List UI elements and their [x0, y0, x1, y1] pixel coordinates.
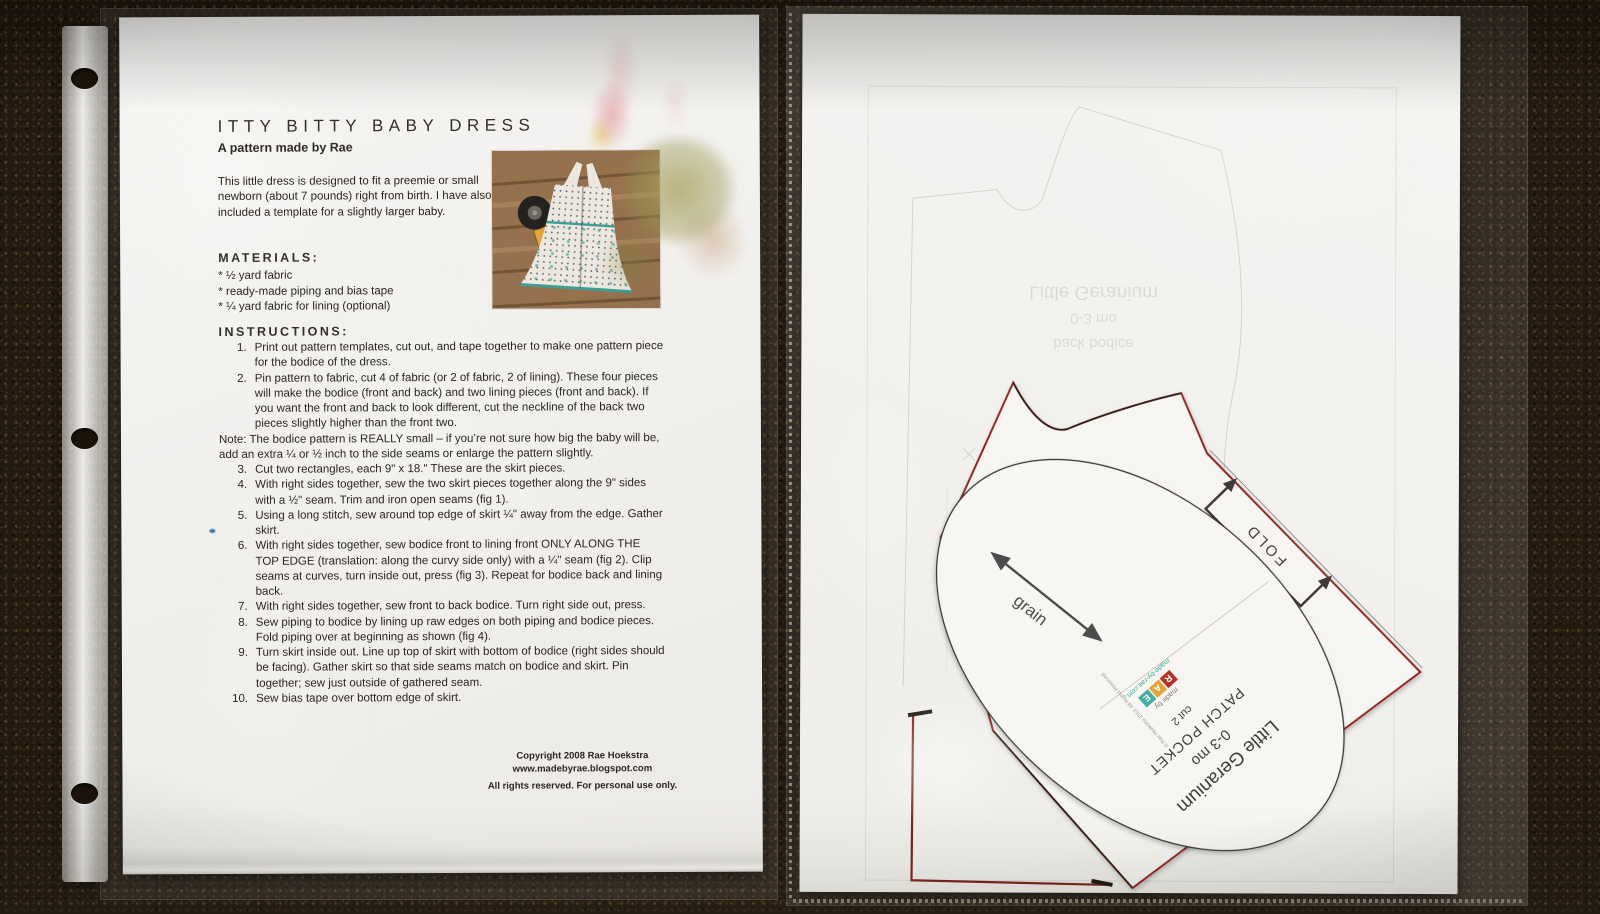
instruction-step: 9.Turn skirt inside out. Line up top of … — [220, 644, 666, 692]
pink-stain — [537, 35, 673, 164]
materials-item: * ready-made piping and bias tape — [218, 284, 393, 300]
step-number: 6. — [219, 539, 247, 600]
step-number: 1. — [219, 341, 247, 372]
step-text: Sew bias tape over bottom edge of skirt. — [256, 690, 666, 707]
step-text: Pin pattern to fabric, cut 4 of fabric (… — [255, 370, 665, 433]
right-sheet-protector: Little Geranium 0-3 mo back bodice — [786, 6, 1528, 906]
step-text: With right sides together, sew front to … — [256, 598, 666, 615]
copyright-block: Copyright 2008 Rae Hoekstra www.madebyra… — [474, 750, 690, 793]
show-through-labels: Little Geranium 0-3 mo back bodice — [1029, 282, 1158, 352]
dress-photo-graphic — [492, 150, 661, 309]
binder-hole — [71, 428, 98, 449]
step-number: 4. — [219, 478, 247, 509]
step-text: Print out pattern templates, cut out, an… — [255, 339, 665, 371]
copyright-url: www.madebyrae.blogspot.com — [474, 762, 690, 775]
instruction-step: 1.Print out pattern templates, cut out, … — [219, 339, 665, 371]
step-number: 10. — [220, 692, 248, 707]
step-text: With right sides together, sew the two s… — [255, 476, 665, 508]
step-text: Turn skirt inside out. Line up top of sk… — [256, 644, 666, 692]
instructions-heading: INSTRUCTIONS: — [218, 324, 348, 339]
step-number: 3. — [219, 463, 247, 478]
pattern-page: Little Geranium 0-3 mo back bodice — [799, 14, 1460, 894]
step-number: 2. — [219, 371, 247, 432]
pink-stain-small — [651, 63, 699, 143]
step-number: 9. — [220, 646, 248, 692]
materials-heading: MATERIALS: — [218, 251, 319, 265]
instruction-step: 8.Sew piping to bodice by lining up raw … — [220, 614, 666, 646]
step-number: 7. — [220, 600, 248, 615]
binder-hole — [71, 783, 98, 804]
intro-paragraph: This little dress is designed to fit a p… — [218, 174, 500, 221]
binder-strip — [62, 26, 108, 882]
instruction-step: 2.Pin pattern to fabric, cut 4 of fabric… — [219, 370, 665, 433]
step-text: With right sides together, sew bodice fr… — [255, 537, 665, 600]
step-text: Using a long stitch, sew around top edge… — [255, 507, 665, 539]
materials-item: * ½ yard fabric — [218, 268, 393, 284]
binder-hole — [71, 68, 98, 89]
instruction-step: 6.With right sides together, sew bodice … — [219, 537, 665, 600]
step-text: Cut two rectangles, each 9" x 18." These… — [255, 461, 665, 478]
note-paragraph: Note: The bodice pattern is REALLY small… — [219, 431, 665, 463]
left-sheet-protector: ITTY BITTY BABY DRESS A pattern made by … — [100, 8, 778, 900]
instruction-step: 5.Using a long stitch, sew around top ed… — [219, 507, 665, 539]
materials-item: * ¼ yard fabric for lining (optional) — [218, 299, 393, 315]
copyright-line: Copyright 2008 Rae Hoekstra — [474, 750, 690, 763]
dress-photo — [492, 150, 661, 309]
show-through-title: Little Geranium — [1029, 282, 1158, 303]
step-number: 5. — [219, 509, 247, 540]
step-number: 8. — [220, 615, 248, 646]
instruction-page: ITTY BITTY BABY DRESS A pattern made by … — [119, 15, 763, 875]
page-subtitle: A pattern made by Rae — [218, 140, 353, 155]
page-title: ITTY BITTY BABY DRESS — [218, 116, 536, 137]
instruction-step: 4.With right sides together, sew the two… — [219, 476, 665, 508]
pattern-drawing: Little Geranium 0-3 mo back bodice — [799, 14, 1460, 894]
show-through-size: 0-3 mo — [1070, 310, 1117, 327]
step-text: Sew piping to bodice by lining up raw ed… — [256, 614, 666, 646]
rights-line: All rights reserved. For personal use on… — [474, 780, 690, 793]
show-through-piece: back bodice — [1053, 335, 1133, 352]
materials-list: * ½ yard fabric * ready-made piping and … — [218, 268, 393, 315]
instruction-step: 10.Sew bias tape over bottom edge of ski… — [220, 690, 666, 707]
blue-pen-mark — [209, 529, 215, 533]
instructions-list: 1.Print out pattern templates, cut out, … — [219, 339, 667, 707]
